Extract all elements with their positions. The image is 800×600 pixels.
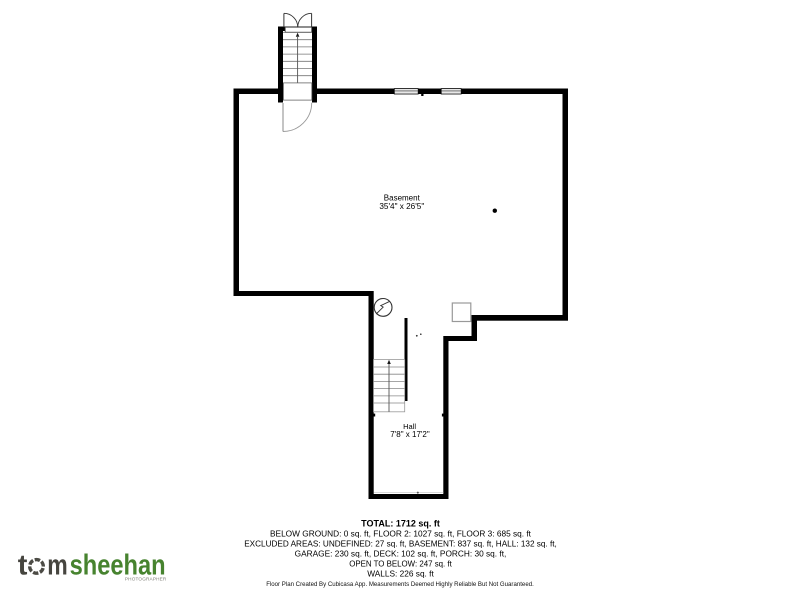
svg-text:WALLS: 226 sq. ft: WALLS: 226 sq. ft: [367, 569, 434, 579]
svg-text:PHOTOGRAPHER: PHOTOGRAPHER: [125, 576, 167, 581]
svg-text:Basement: Basement: [384, 193, 421, 202]
svg-text:EXCLUDED AREAS: UNDEFINED: 27: EXCLUDED AREAS: UNDEFINED: 27 sq. ft, BA…: [244, 540, 557, 549]
svg-text:TOTAL: 1712 sq. ft: TOTAL: 1712 sq. ft: [361, 518, 440, 528]
svg-text:7'8" x 17'2": 7'8" x 17'2": [390, 430, 430, 439]
svg-text:t: t: [18, 550, 28, 582]
svg-text:m: m: [47, 550, 68, 582]
svg-text:GARAGE: 230 sq. ft, DECK: 102: GARAGE: 230 sq. ft, DECK: 102 sq. ft, PO…: [295, 549, 507, 559]
svg-text:Floor Plan Created By Cubicasa: Floor Plan Created By Cubicasa App. Meas…: [266, 581, 534, 588]
svg-text:OPEN TO BELOW: 247 sq. ft: OPEN TO BELOW: 247 sq. ft: [349, 560, 452, 569]
svg-text:35'4" x 26'5": 35'4" x 26'5": [379, 202, 424, 211]
svg-text:BELOW GROUND: 0 sq. ft, FLOOR: BELOW GROUND: 0 sq. ft, FLOOR 2: 1027 sq…: [270, 529, 532, 539]
